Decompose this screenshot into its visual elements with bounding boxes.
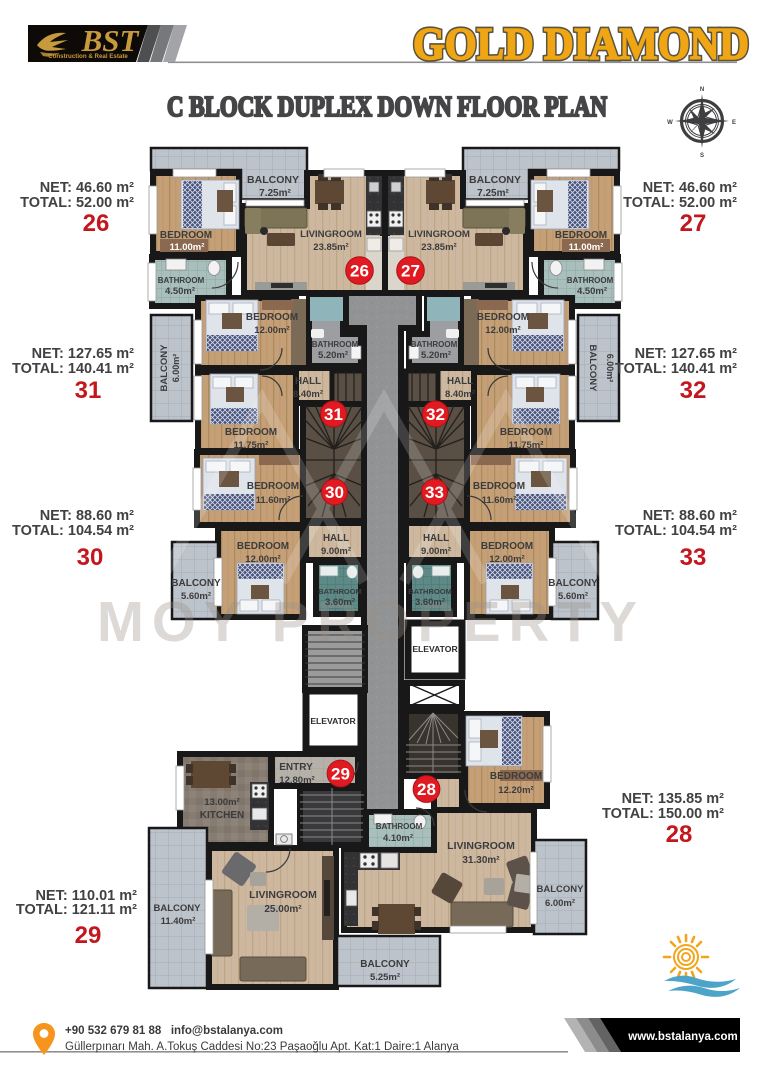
svg-text:TOTAL: 104.54 m²: TOTAL: 104.54 m² <box>12 523 134 539</box>
svg-text:11.00m²: 11.00m² <box>170 242 205 253</box>
svg-text:HALL: HALL <box>295 376 321 387</box>
svg-text:NET: 127.65 m²: NET: 127.65 m² <box>32 346 135 362</box>
svg-text:BEDROOM: BEDROOM <box>247 481 299 492</box>
svg-text:TOTAL: 140.41 m²: TOTAL: 140.41 m² <box>615 361 737 377</box>
svg-text:12.00m²: 12.00m² <box>254 325 289 336</box>
svg-text:5.25m²: 5.25m² <box>370 972 400 983</box>
svg-text:TOTAL: 52.00 m²: TOTAL: 52.00 m² <box>623 195 737 211</box>
svg-text:23.85m²: 23.85m² <box>421 242 456 253</box>
svg-text:26: 26 <box>350 262 369 281</box>
svg-text:32: 32 <box>680 377 707 404</box>
svg-text:4.10m²: 4.10m² <box>383 833 413 844</box>
svg-text:LIVINGROOM: LIVINGROOM <box>408 229 470 240</box>
svg-text:12.00m²: 12.00m² <box>489 554 524 565</box>
svg-text:33: 33 <box>680 544 707 571</box>
svg-text:ENTRY: ENTRY <box>279 762 313 773</box>
svg-text:BALCONY: BALCONY <box>587 345 598 393</box>
svg-text:5.60m²: 5.60m² <box>558 591 588 602</box>
svg-text:Güllerpınarı Mah. A.Tokuş Cadd: Güllerpınarı Mah. A.Tokuş Caddesi No:23 … <box>65 1041 459 1053</box>
svg-text:12.20m²: 12.20m² <box>498 785 533 796</box>
svg-text:ELEVATOR: ELEVATOR <box>310 716 356 726</box>
svg-text:NET: 46.60 m²: NET: 46.60 m² <box>40 180 134 196</box>
svg-text:GOLD DIAMOND: GOLD DIAMOND <box>413 19 749 69</box>
svg-text:NET: 127.65 m²: NET: 127.65 m² <box>635 346 738 362</box>
svg-text:30: 30 <box>325 483 344 502</box>
svg-text:BATHROOM: BATHROOM <box>408 587 452 596</box>
svg-text:BEDROOM: BEDROOM <box>481 541 533 552</box>
svg-text:BEDROOM: BEDROOM <box>225 427 277 438</box>
svg-text:HALL: HALL <box>423 533 449 544</box>
svg-text:C BLOCK DUPLEX DOWN FLOOR PLAN: C BLOCK DUPLEX DOWN FLOOR PLAN <box>167 92 607 123</box>
svg-text:KITCHEN: KITCHEN <box>200 810 244 821</box>
svg-text:BATHROOM: BATHROOM <box>411 340 458 349</box>
svg-text:32: 32 <box>426 405 445 424</box>
svg-text:6.00m²: 6.00m² <box>605 354 615 383</box>
svg-text:28: 28 <box>417 780 436 799</box>
svg-text:BATHROOM: BATHROOM <box>158 276 205 285</box>
svg-text:BATHROOM: BATHROOM <box>318 587 362 596</box>
svg-text:7.25m²: 7.25m² <box>259 188 291 199</box>
svg-text:27: 27 <box>401 262 420 281</box>
svg-text:31.30m²: 31.30m² <box>462 855 500 866</box>
svg-text:11.00m²: 11.00m² <box>569 242 604 253</box>
svg-text:4.50m²: 4.50m² <box>577 286 607 297</box>
svg-text:BALCONY: BALCONY <box>537 884 585 895</box>
svg-text:BEDROOM: BEDROOM <box>160 230 212 241</box>
svg-text:HALL: HALL <box>323 533 349 544</box>
svg-text:TOTAL: 104.54 m²: TOTAL: 104.54 m² <box>615 523 737 539</box>
svg-text:BEDROOM: BEDROOM <box>490 771 542 782</box>
svg-text:+90 532 679 81 88 info@bstal: +90 532 679 81 88 info@bstalanya.com <box>65 1025 283 1037</box>
svg-text:11.75m²: 11.75m² <box>234 440 269 451</box>
svg-text:29: 29 <box>331 765 350 784</box>
svg-text:27: 27 <box>680 210 707 237</box>
svg-text:BEDROOM: BEDROOM <box>473 481 525 492</box>
svg-text:11.60m²: 11.60m² <box>482 495 517 506</box>
svg-text:30: 30 <box>77 544 104 571</box>
svg-text:BALCONY: BALCONY <box>548 578 598 589</box>
svg-text:BALCONY: BALCONY <box>154 903 202 914</box>
svg-text:11.60m²: 11.60m² <box>256 495 291 506</box>
svg-text:5.20m²: 5.20m² <box>421 350 451 361</box>
svg-text:3.60m²: 3.60m² <box>415 597 445 608</box>
svg-text:33: 33 <box>425 483 444 502</box>
svg-text:12.00m²: 12.00m² <box>245 554 280 565</box>
svg-text:23.85m²: 23.85m² <box>313 242 348 253</box>
svg-text:BATHROOM: BATHROOM <box>376 822 423 831</box>
svg-text:BEDROOM: BEDROOM <box>237 541 289 552</box>
svg-text:13.00m²: 13.00m² <box>204 797 239 808</box>
svg-text:BEDROOM: BEDROOM <box>246 312 298 323</box>
svg-text:9.00m²: 9.00m² <box>421 546 451 557</box>
svg-text:TOTAL: 52.00 m²: TOTAL: 52.00 m² <box>20 195 134 211</box>
svg-text:6.00m²: 6.00m² <box>171 354 181 383</box>
svg-text:BALCONY: BALCONY <box>171 578 221 589</box>
svg-text:31: 31 <box>75 377 102 404</box>
svg-text:BATHROOM: BATHROOM <box>312 340 359 349</box>
svg-text:26: 26 <box>83 210 110 237</box>
svg-text:BEDROOM: BEDROOM <box>500 427 552 438</box>
svg-text:N: N <box>700 87 704 93</box>
svg-text:12.80m²: 12.80m² <box>279 775 314 786</box>
svg-text:9.00m²: 9.00m² <box>321 546 351 557</box>
svg-text:NET: 88.60 m²: NET: 88.60 m² <box>643 508 737 524</box>
svg-text:12.00m²: 12.00m² <box>485 325 520 336</box>
svg-text:11.40m²: 11.40m² <box>161 916 196 927</box>
svg-text:4.50m²: 4.50m² <box>165 286 195 297</box>
svg-text:HALL: HALL <box>447 376 473 387</box>
svg-text:LIVINGROOM: LIVINGROOM <box>447 840 515 852</box>
svg-text:LIVINGROOM: LIVINGROOM <box>249 889 317 901</box>
svg-text:5.20m²: 5.20m² <box>318 350 348 361</box>
svg-text:11.75m²: 11.75m² <box>509 440 544 451</box>
svg-text:BALCONY: BALCONY <box>247 174 299 186</box>
svg-text:28: 28 <box>666 821 693 848</box>
svg-text:BATHROOM: BATHROOM <box>567 276 614 285</box>
svg-text:TOTAL: 121.11 m²: TOTAL: 121.11 m² <box>16 902 137 918</box>
svg-text:8.40m²: 8.40m² <box>445 389 475 400</box>
svg-text:3.60m²: 3.60m² <box>325 597 355 608</box>
svg-text:6.00m²: 6.00m² <box>545 898 575 909</box>
svg-text:E: E <box>732 120 736 126</box>
svg-text:5.60m²: 5.60m² <box>181 591 211 602</box>
svg-text:NET: 135.85 m²: NET: 135.85 m² <box>622 791 725 807</box>
svg-text:25.00m²: 25.00m² <box>264 904 302 915</box>
svg-text:NET: 46.60 m²: NET: 46.60 m² <box>643 180 737 196</box>
svg-text:NET: 88.60 m²: NET: 88.60 m² <box>40 508 134 524</box>
svg-text:BEDROOM: BEDROOM <box>477 312 529 323</box>
svg-text:www.bstalanya.com: www.bstalanya.com <box>627 1031 738 1043</box>
svg-text:TOTAL: 150.00 m²: TOTAL: 150.00 m² <box>602 806 724 822</box>
svg-text:31: 31 <box>324 405 343 424</box>
svg-text:29: 29 <box>75 922 102 949</box>
svg-text:S: S <box>700 153 704 159</box>
svg-text:W: W <box>667 120 673 126</box>
svg-text:TOTAL: 140.41 m²: TOTAL: 140.41 m² <box>12 361 134 377</box>
svg-text:BALCONY: BALCONY <box>360 959 410 970</box>
svg-text:8.40m²: 8.40m² <box>293 389 323 400</box>
svg-text:BALCONY: BALCONY <box>469 174 521 186</box>
svg-text:BALCONY: BALCONY <box>159 344 170 392</box>
svg-text:LIVINGROOM: LIVINGROOM <box>300 229 362 240</box>
svg-text:Construction & Real Estate: Construction & Real Estate <box>48 53 128 60</box>
svg-text:7.25m²: 7.25m² <box>477 188 509 199</box>
svg-text:BEDROOM: BEDROOM <box>555 230 607 241</box>
